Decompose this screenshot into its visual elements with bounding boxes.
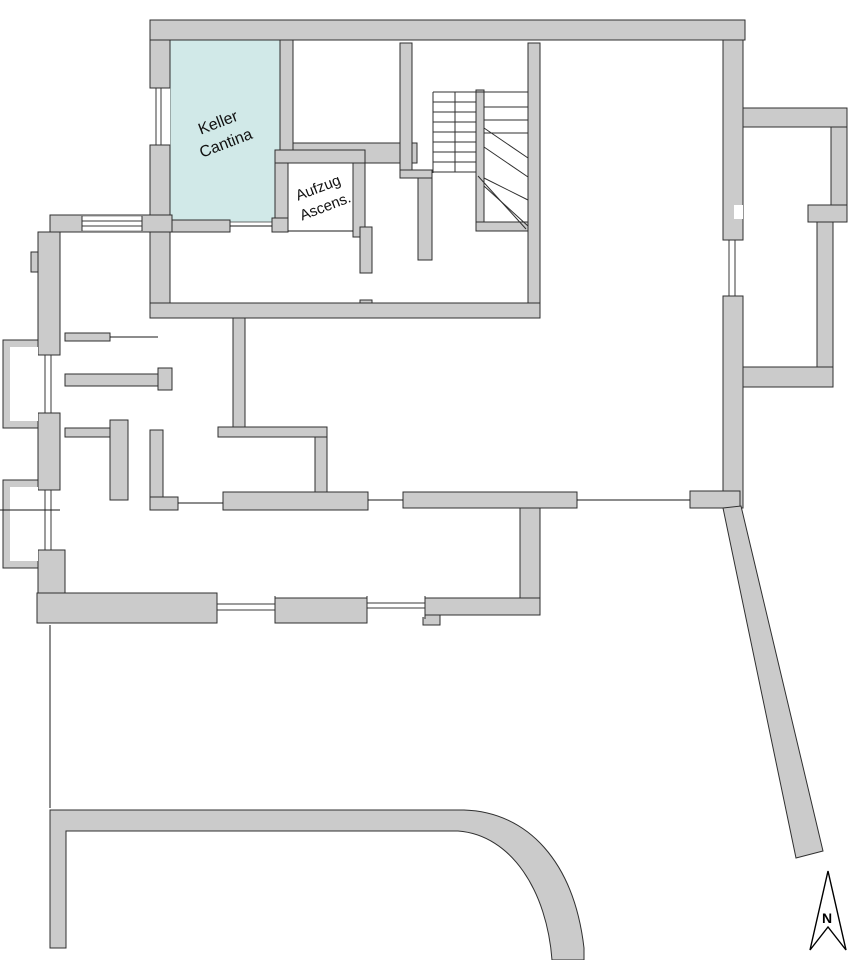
wall-segment — [315, 437, 327, 493]
windows-layer — [38, 88, 743, 622]
window — [38, 355, 60, 413]
wall-segment — [272, 218, 288, 232]
wall-segment — [233, 318, 245, 430]
light-well-opening — [10, 347, 38, 421]
wall-segment — [400, 170, 432, 178]
wall-stair-west — [400, 43, 412, 176]
light-well-opening — [10, 487, 38, 561]
wall-south-step — [423, 615, 440, 625]
wall-niche — [734, 205, 743, 219]
window — [217, 598, 275, 620]
window — [38, 490, 60, 550]
stair-stringer — [476, 90, 484, 228]
wall-west-mid — [38, 413, 60, 490]
wall-partition — [65, 374, 162, 386]
window — [150, 88, 170, 145]
wall-segment — [150, 497, 178, 510]
wall-top — [150, 20, 745, 40]
window — [723, 240, 743, 296]
wall-south — [37, 593, 217, 623]
wall-shaft-step — [808, 205, 847, 222]
wall-stair-east — [528, 43, 540, 318]
walls-layer — [3, 20, 847, 960]
wall-segment — [690, 491, 740, 508]
wall-segment — [150, 40, 170, 88]
light-well-interiors — [10, 347, 38, 561]
north-label: N — [822, 910, 832, 926]
wall-segment — [403, 492, 577, 508]
wall-elevator-top — [275, 150, 365, 163]
wall-east-lower — [723, 296, 743, 508]
keller-cantina-room — [170, 40, 280, 222]
wall-elevator-right — [353, 163, 365, 237]
wall-segment — [418, 178, 432, 260]
wall-partition-head — [158, 368, 172, 390]
wall-partition — [65, 428, 110, 437]
wall-shaft-right-lower — [817, 222, 833, 370]
wall-segment — [110, 420, 128, 500]
wall-south — [425, 598, 540, 615]
floor-plan-page: Keller Cantina Aufzug Ascens. N — [0, 0, 858, 960]
stair-stub-wall — [476, 222, 528, 231]
curved-retaining-wall — [50, 810, 584, 960]
wall-segment — [150, 232, 170, 303]
north-arrow-icon: N — [810, 871, 846, 950]
wall-segment — [360, 227, 372, 273]
floor-plan: Keller Cantina Aufzug Ascens. N — [0, 0, 858, 960]
window — [82, 217, 142, 230]
aufzug-label: Aufzug Ascens. — [290, 171, 353, 225]
wall-south — [275, 598, 367, 623]
diagonal-boundary-wall — [723, 506, 823, 858]
wall-partition — [65, 333, 110, 341]
wall-segment — [150, 430, 163, 500]
wall-cantina-right — [280, 40, 293, 150]
wall-segment — [223, 492, 368, 510]
wall-shaft-top — [743, 108, 847, 127]
wall-segment — [520, 508, 540, 598]
wall-west-upper — [38, 232, 60, 355]
wall-shaft-bottom — [743, 367, 833, 387]
wall-corridor — [150, 303, 540, 318]
wall-segment — [218, 427, 327, 437]
